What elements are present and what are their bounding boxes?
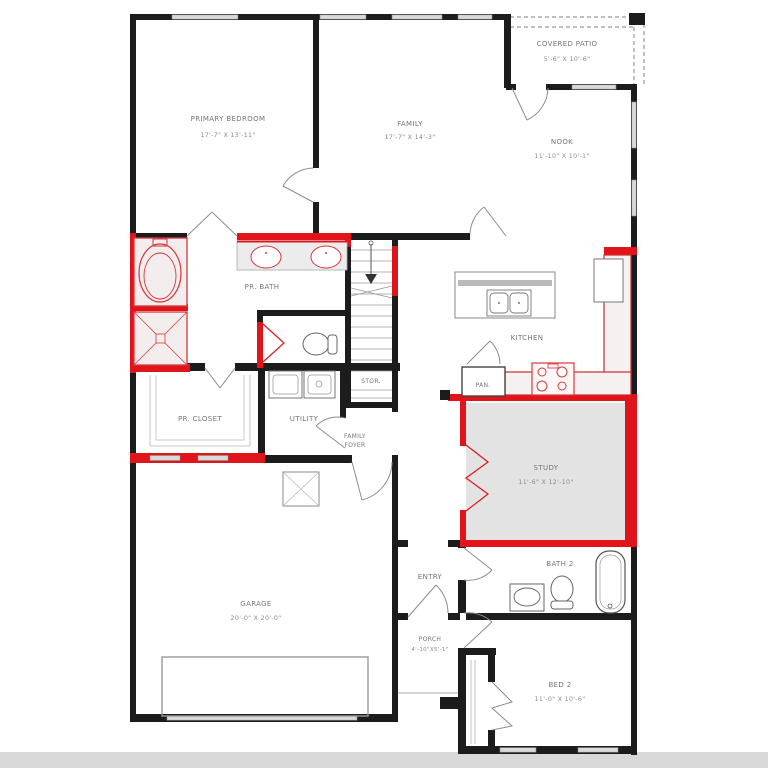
covered-patio-outline bbox=[510, 17, 644, 86]
stairs bbox=[351, 241, 392, 398]
room-fills bbox=[0, 403, 768, 768]
closet-utility bbox=[150, 371, 335, 446]
tub-surround bbox=[134, 238, 187, 306]
pan-label: PAN. bbox=[476, 382, 491, 389]
primary-bath-fixtures bbox=[134, 238, 347, 365]
stairs-up-arrow bbox=[365, 274, 377, 284]
family-label: FAMILY bbox=[397, 120, 423, 128]
stor-label: STOR. bbox=[361, 378, 381, 385]
nook-dims: 11'-10" X 10'-1" bbox=[534, 153, 589, 160]
primary-bedroom-dims: 17'-7" X 13'-11" bbox=[200, 132, 255, 139]
covered-patio-dims: 5'-6" X 10'-6" bbox=[544, 56, 591, 63]
bath2-label: BATH 2 bbox=[546, 560, 573, 568]
pr-bath-label: PR. BATH bbox=[245, 283, 280, 291]
pr-closet-label: PR. CLOSET bbox=[178, 415, 222, 423]
bath2-toilet bbox=[551, 576, 573, 602]
toilet-room-door bbox=[263, 324, 284, 362]
entry-label: ENTRY bbox=[418, 573, 443, 581]
study-label: STUDY bbox=[534, 464, 559, 472]
kitchen-fixtures bbox=[455, 255, 631, 396]
study-dims: 11'-6" X 12'-10" bbox=[518, 479, 573, 486]
family-foyer-label-1: FAMILY bbox=[344, 433, 366, 440]
garage-door-alcove bbox=[162, 657, 368, 716]
floor-plan-svg: PRIMARY BEDROOM 17'-7" X 13'-11" FAMILY … bbox=[0, 0, 768, 768]
kitchen-label: KITCHEN bbox=[511, 334, 544, 342]
toilet bbox=[303, 333, 329, 355]
island-counter-edge bbox=[458, 280, 552, 286]
vanity-sink-left bbox=[251, 246, 281, 268]
garage-dims: 20'-0" X 20'-0" bbox=[231, 615, 282, 622]
family-foyer-label-2: FOYER bbox=[345, 442, 366, 449]
utility-label: UTILITY bbox=[290, 415, 319, 423]
primary-bedroom-label: PRIMARY BEDROOM bbox=[191, 115, 266, 123]
porch-dims: 4'-10"X5'-1" bbox=[411, 647, 448, 653]
floor-plan-image: PRIMARY BEDROOM 17'-7" X 13'-11" FAMILY … bbox=[0, 0, 768, 768]
vanity-sink-right bbox=[311, 246, 341, 268]
nook-label: NOOK bbox=[551, 138, 573, 146]
refrigerator bbox=[594, 259, 623, 302]
family-dims: 17'-7" X 14'-3" bbox=[385, 134, 436, 141]
garage-label: GARAGE bbox=[240, 600, 271, 608]
covered-patio-label: COVERED PATIO bbox=[537, 40, 598, 48]
porch-label: PORCH bbox=[419, 636, 441, 643]
bed2-label: BED 2 bbox=[548, 681, 571, 689]
garage-fixtures bbox=[162, 472, 458, 716]
patio-post bbox=[629, 13, 645, 25]
island-sink bbox=[487, 290, 531, 316]
bath2-bed2-fixtures bbox=[471, 551, 625, 744]
bed2-dims: 11'-0" X 10'-6" bbox=[535, 696, 586, 703]
footer-bar bbox=[0, 752, 768, 768]
